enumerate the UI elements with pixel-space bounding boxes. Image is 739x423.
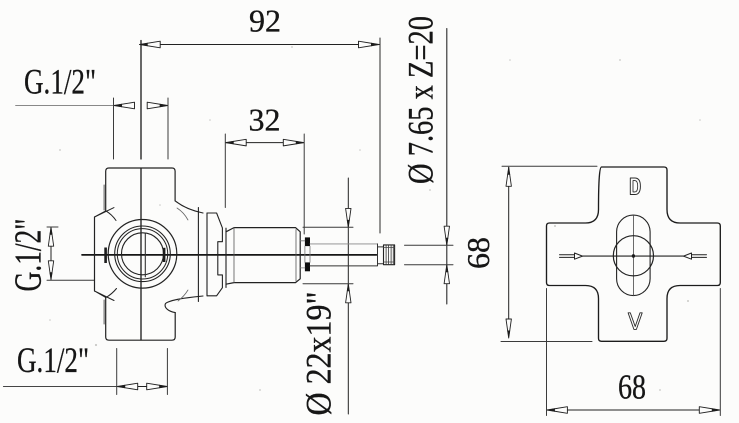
svg-text:G.1/2": G.1/2" [8,219,50,292]
svg-text:Ø 7.65 x Z=20: Ø 7.65 x Z=20 [401,16,441,184]
svg-text:G.1/2": G.1/2" [17,340,89,380]
svg-text:68: 68 [618,368,646,407]
svg-text:32: 32 [249,102,281,138]
svg-text:68: 68 [460,237,496,269]
svg-text:G.1/2": G.1/2" [24,62,96,102]
svg-text:Ø 22x19": Ø 22x19" [299,292,339,416]
svg-text:92: 92 [249,3,281,39]
